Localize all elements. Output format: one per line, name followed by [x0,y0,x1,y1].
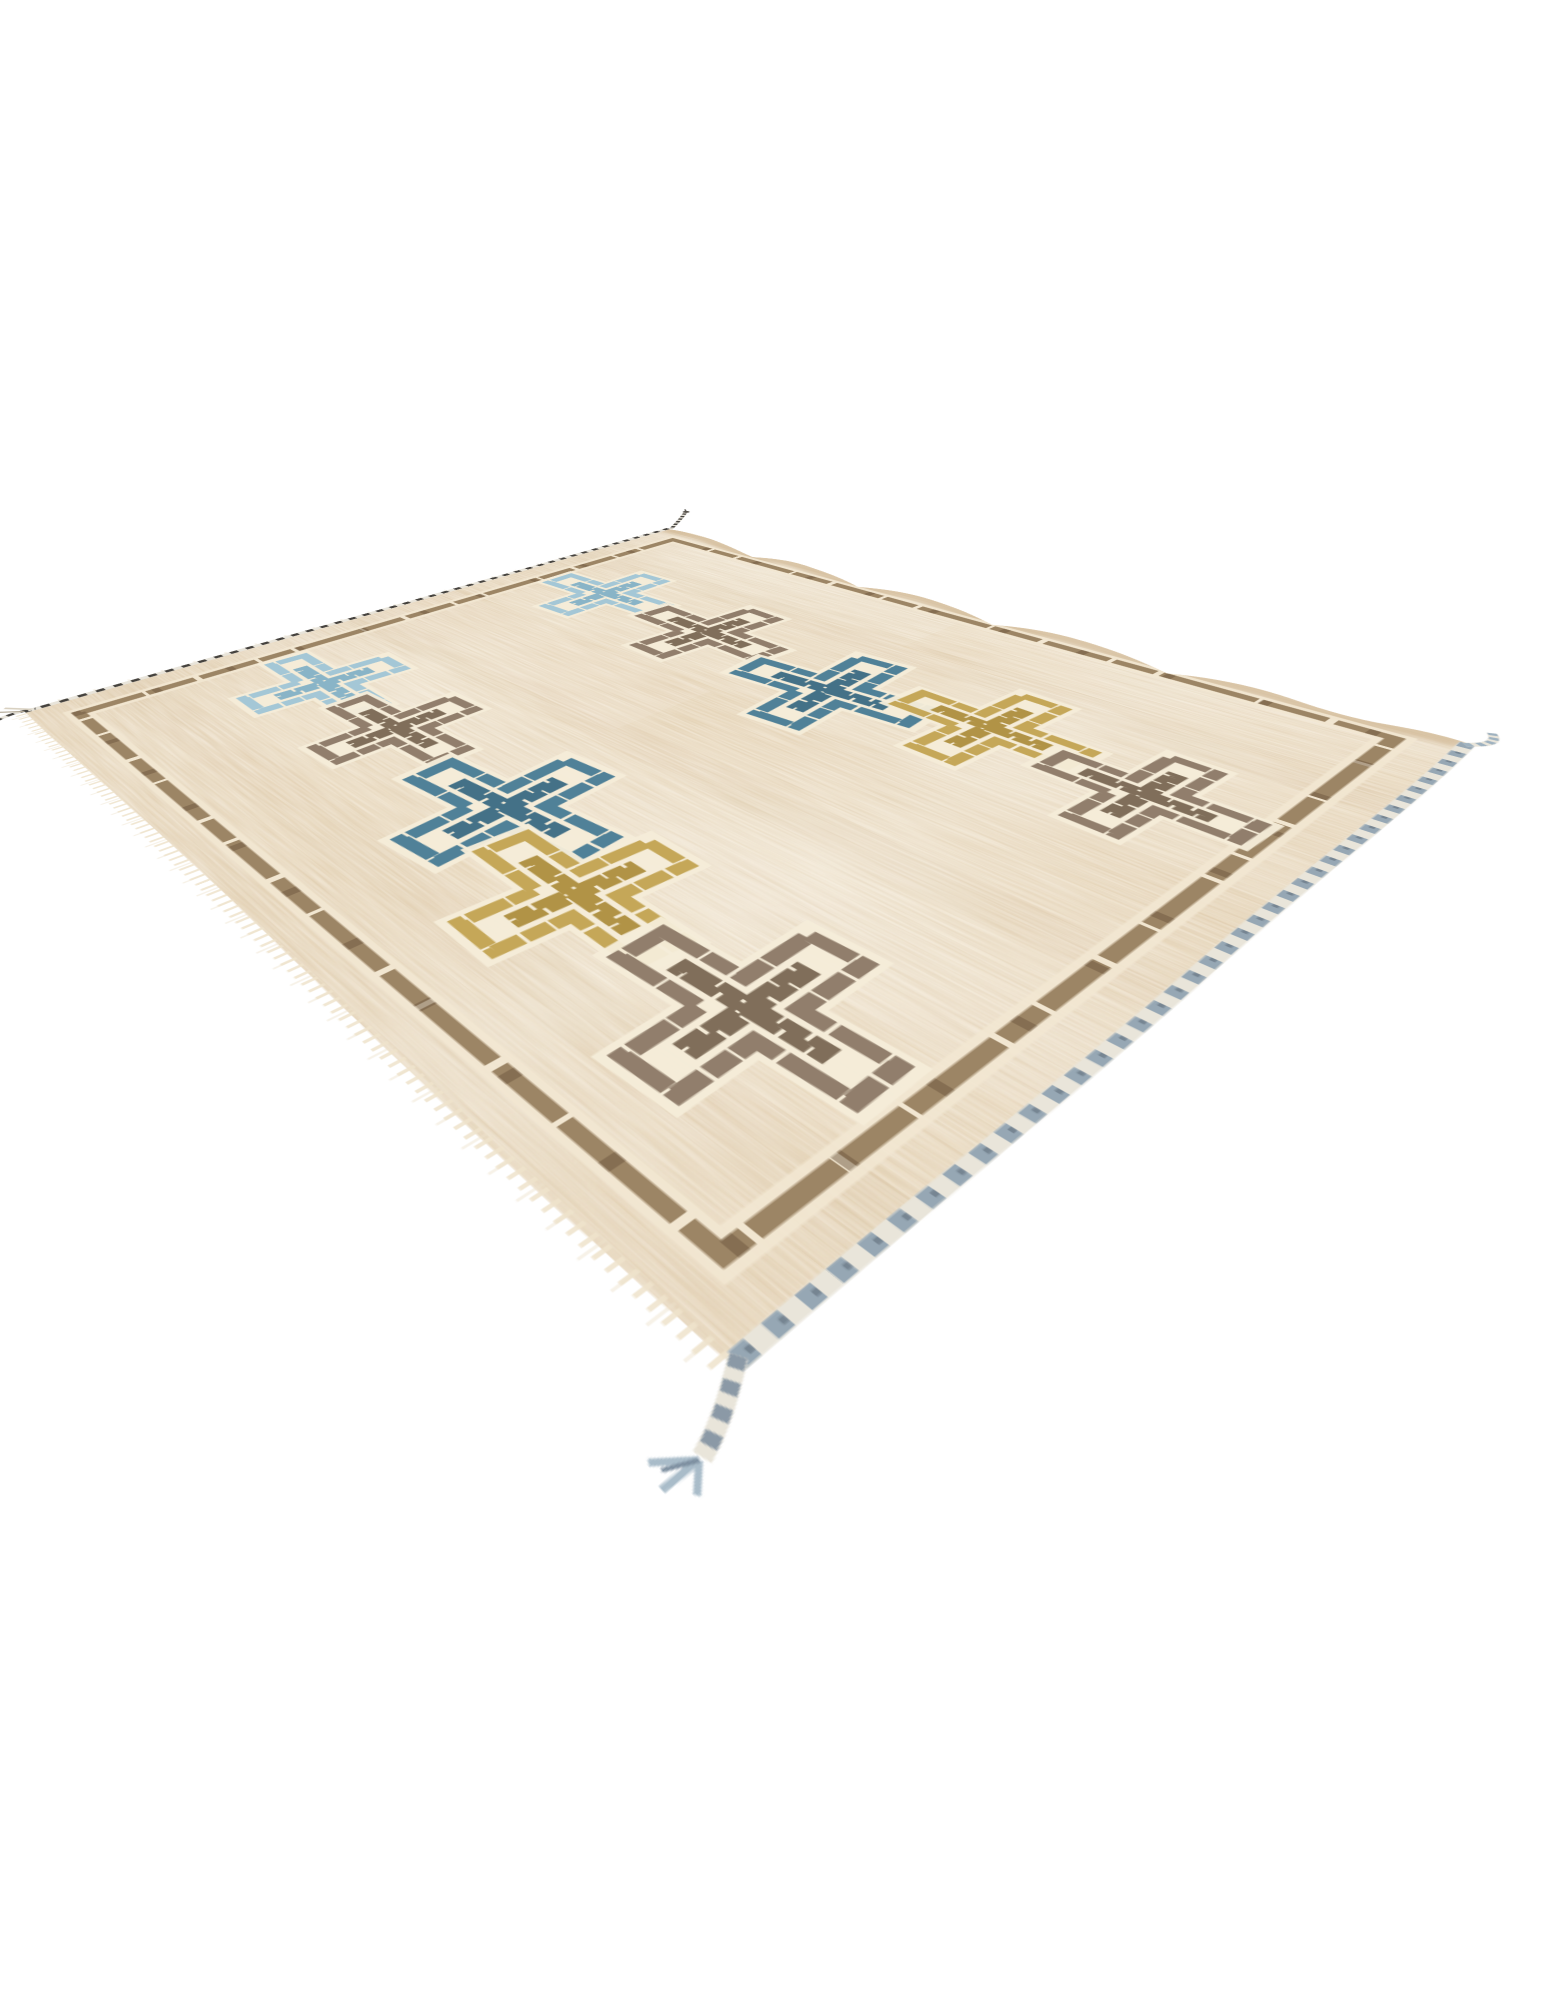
rug-graphic [25,528,1470,1363]
product-photo [0,0,1556,2000]
corner-braid-bottom [626,1356,795,1511]
rug-weave [13,525,1487,1390]
corner-tassel-top [642,509,714,528]
kilim-rug [25,528,1470,1363]
